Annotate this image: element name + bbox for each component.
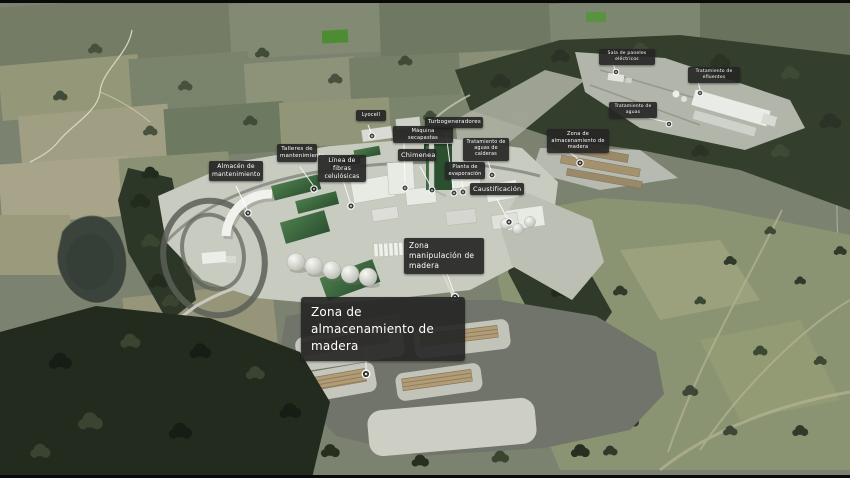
callout-tratamiento-aguas: Tratamiento de aguas	[609, 102, 657, 118]
callout-zona-manipulacion-madera: Zona manipulación de madera	[404, 238, 484, 274]
clarifier-tank	[681, 96, 687, 102]
callout-talleres-mantenimiento: Talleres de mantenimiento	[277, 144, 317, 162]
callout-tratamiento-aguas-calderas: Tratamiento de aguas de calderas	[463, 138, 509, 161]
callout-planta-evaporacion: Planta de evaporación	[445, 162, 485, 179]
callout-caustificacion: Caustificación	[470, 183, 524, 195]
clarifier-tank	[673, 91, 680, 98]
callout-linea-fibras-celulosicas: Línea de fibras celulósicas	[318, 155, 366, 182]
callout-lyocell: Lyocell	[356, 110, 386, 121]
callout-turbogeneradores: Turbogeneradores	[425, 117, 483, 128]
gatehouse	[202, 251, 227, 264]
callout-almacen-mantenimiento: Almacén de mantenimiento	[209, 161, 263, 181]
callout-zona-almacenamiento-madera-norte: Zona de almacenamiento de madera	[547, 129, 609, 153]
callout-zona-almacenamiento-madera-sur: Zona de almacenamiento de madera	[301, 297, 465, 361]
callout-chimenea: Chimenea	[398, 149, 436, 161]
callout-sala-paneles-electricos: Sala de paneles eléctricos	[599, 49, 655, 65]
letterbox-top	[0, 0, 850, 3]
callout-maquina-secapastas: Máquina secapastas	[393, 126, 453, 143]
aerial-annotated-render: Almacén de mantenimiento Talleres de man…	[0, 0, 850, 478]
callout-tratamiento-efluentes: Tratamiento de efluentes	[688, 67, 740, 83]
